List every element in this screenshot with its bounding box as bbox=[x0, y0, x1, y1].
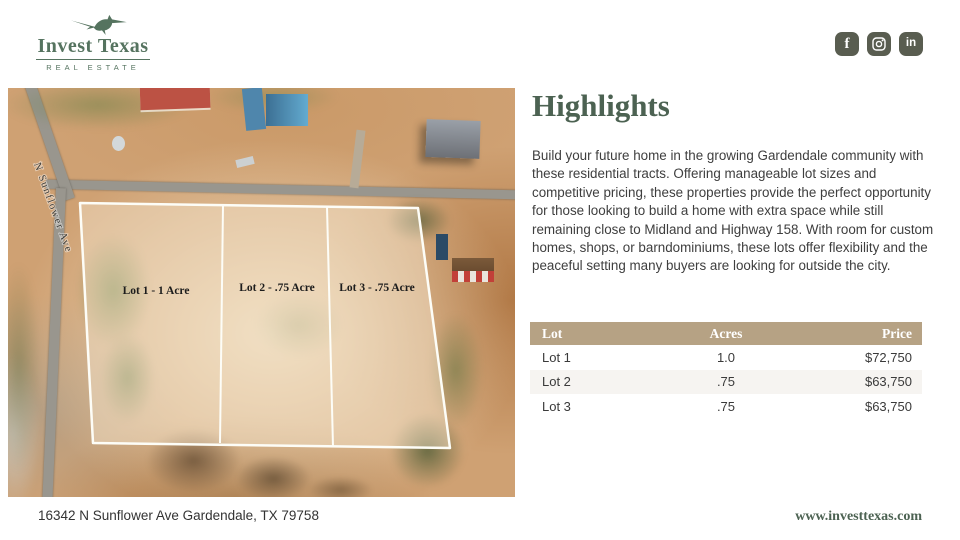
aerial-lot-photo: Lot 1 - 1 Acre Lot 2 - .75 Acre Lot 3 - … bbox=[8, 88, 515, 497]
column-header-lot: Lot bbox=[530, 326, 667, 342]
cell-acres: 1.0 bbox=[667, 350, 785, 365]
cell-lot: Lot 3 bbox=[530, 399, 667, 414]
lot-1-label: Lot 1 - 1 Acre bbox=[123, 285, 190, 297]
brand-name: Invest Texas bbox=[36, 36, 150, 56]
table-header-row: Lot Acres Price bbox=[530, 322, 922, 345]
cell-price: $63,750 bbox=[785, 399, 922, 414]
lot-boundary bbox=[80, 203, 450, 448]
lot-3-label: Lot 3 - .75 Acre bbox=[339, 282, 414, 294]
instagram-glyph bbox=[872, 37, 886, 51]
property-address: 16342 N Sunflower Ave Gardendale, TX 797… bbox=[38, 508, 319, 523]
linkedin-icon[interactable]: in bbox=[899, 32, 923, 56]
cell-price: $63,750 bbox=[785, 374, 922, 389]
website-link[interactable]: www.investtexas.com bbox=[795, 509, 922, 525]
highlights-paragraph: Build your future home in the growing Ga… bbox=[532, 147, 938, 276]
facebook-icon[interactable]: f bbox=[835, 32, 859, 56]
social-links: f in bbox=[835, 32, 923, 56]
lot-price-table: Lot Acres Price Lot 1 1.0 $72,750 Lot 2 … bbox=[530, 322, 922, 419]
lot-2-label: Lot 2 - .75 Acre bbox=[239, 282, 314, 294]
lot-boundary-overlay: Lot 1 - 1 Acre Lot 2 - .75 Acre Lot 3 - … bbox=[8, 88, 515, 497]
column-header-price: Price bbox=[785, 326, 922, 342]
cell-lot: Lot 1 bbox=[530, 350, 667, 365]
cell-acres: .75 bbox=[667, 399, 785, 414]
table-row: Lot 2 .75 $63,750 bbox=[530, 370, 922, 395]
instagram-icon[interactable] bbox=[867, 32, 891, 56]
cell-acres: .75 bbox=[667, 374, 785, 389]
cell-price: $72,750 bbox=[785, 350, 922, 365]
cell-lot: Lot 2 bbox=[530, 374, 667, 389]
flyer-slide: Invest Texas REAL ESTATE f in bbox=[0, 0, 960, 540]
table-row: Lot 3 .75 $63,750 bbox=[530, 394, 922, 419]
brand-logo: Invest Texas REAL ESTATE bbox=[36, 12, 150, 72]
table-row: Lot 1 1.0 $72,750 bbox=[530, 345, 922, 370]
logo-divider bbox=[36, 59, 150, 60]
roadrunner-logo-icon bbox=[70, 12, 134, 36]
page-title: Highlights bbox=[532, 88, 670, 124]
column-header-acres: Acres bbox=[667, 326, 785, 342]
street-name-label: N Sunflower Ave bbox=[31, 161, 74, 254]
brand-subtitle: REAL ESTATE bbox=[36, 63, 150, 72]
